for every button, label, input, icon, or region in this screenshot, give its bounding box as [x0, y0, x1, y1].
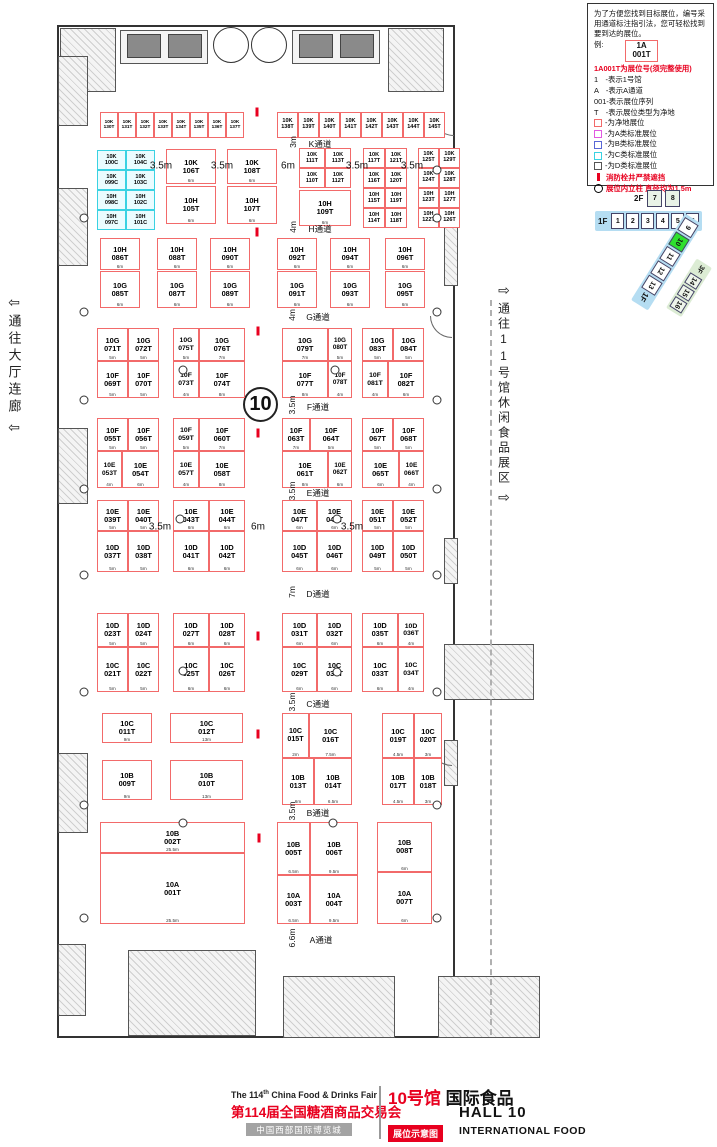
booth-10E-039T: 10E039T5m — [97, 500, 128, 531]
gap-width-label: 3.5m — [211, 161, 233, 172]
booth-10K-137T: 10K137T — [226, 112, 244, 138]
pillar-mark — [80, 214, 89, 223]
booth-10K-099C: 10K099C — [97, 170, 126, 190]
fire-hydrant-mark — [257, 429, 260, 438]
booth-10D-024T: 10D024T5m — [128, 613, 159, 647]
booth-10H-126T: 10H126T — [439, 208, 460, 228]
minimap-arm-label: 1F — [638, 291, 651, 304]
booth-10D-049T: 10D049T5m — [362, 531, 393, 572]
booth-10H-115T: 10H115T — [363, 188, 385, 208]
pillar-mark — [433, 485, 442, 494]
booth-10K-136T: 10K136T — [208, 112, 226, 138]
minimap-hall-4: 4 — [656, 213, 669, 229]
revolving-door — [251, 27, 287, 63]
aisle-name-C通道: C通道 — [306, 698, 329, 710]
arrow-right-icon: ⇨ — [491, 490, 517, 505]
top-slab — [168, 34, 202, 58]
legend-example-label: 例: — [594, 40, 603, 50]
aisle-width-label: 6.6m — [287, 929, 297, 948]
booth-10G-093T: 10G093T6m — [330, 271, 370, 308]
pillar-mark — [179, 366, 188, 375]
booth-10E-053T: 10E053T4m — [97, 451, 122, 488]
booth-10B-005T: 10B005T6.5m — [277, 822, 310, 875]
booth-10B-008T: 10B008T6m — [377, 822, 432, 872]
bottom-facility-center — [283, 976, 395, 1038]
legend-hydrant-note: 消防栓井严禁遮挡 — [594, 172, 708, 183]
booth-10K-135T: 10K135T — [190, 112, 208, 138]
aisle-width-label: 3.5m — [287, 396, 297, 415]
booth-10G-087T: 10G087T6m — [157, 271, 197, 308]
pillar-mark — [80, 688, 89, 697]
title-block: The 114th China Food & Drinks Fair 第114届… — [0, 1082, 717, 1147]
class-label: -为B类标准展位 — [605, 139, 657, 150]
legend-booth-classes: -为净地展位-为A类标准展位-为B类标准展位-为C类标准展位-为D类标准展位 — [594, 118, 708, 172]
gap-width-label: 3.5m — [341, 522, 363, 533]
fire-hydrant-mark — [257, 632, 260, 641]
arrow-left-icon: ⇦ — [1, 420, 27, 435]
legend-box: 为了方便您找到目标展位，编号采用通道标注指引法，您可轻松找到要到达的展位。 例:… — [587, 3, 714, 186]
hall-number-circle: 10 — [243, 387, 278, 422]
aisle-width-label: 4m — [287, 309, 297, 321]
booth-10D-028T: 10D028T6m — [209, 613, 245, 647]
left-wall-facility — [58, 944, 86, 1016]
pillar-mark — [80, 396, 89, 405]
gap-width-label: 3.5m — [346, 161, 368, 172]
booth-10H-102C: 10H102C — [126, 190, 155, 210]
booth-10H-105T: 10H105T6m — [166, 186, 216, 224]
booth-10A-004T: 10A004T9.5m — [310, 875, 358, 924]
minimap-hall-7: 7 — [647, 190, 662, 207]
aisle-width-label: 4m — [288, 221, 298, 233]
booth-10D-041T: 10D041T6m — [173, 531, 209, 572]
booth-10C-011T: 10C011T9m — [102, 713, 152, 743]
class-swatch — [594, 130, 602, 138]
booth-10G-083T: 10G083T5m — [362, 328, 393, 361]
booth-10H-119T: 10H119T — [385, 188, 407, 208]
booth-10E-057T: 10E057T4m — [173, 451, 199, 488]
booth-10H-101C: 10H101C — [126, 210, 155, 230]
booth-10K-132T: 10K132T — [136, 112, 154, 138]
booth-10K-108T: 10K108T6m — [227, 149, 277, 184]
booth-10C-033T: 10C033T6m — [362, 647, 398, 692]
legend-item: T -表示展位类型为净地 — [594, 107, 708, 118]
booth-10D-050T: 10D050T5m — [393, 531, 424, 572]
booth-10F-069T: 10F069T5m — [97, 361, 128, 398]
hall-number-cn: 10号馆 — [388, 1089, 441, 1108]
booth-10K-138T: 10K138T — [277, 112, 298, 138]
booth-10F-068T: 10F068T5m — [393, 418, 424, 451]
aisle-width-label: 3m — [288, 136, 298, 148]
legend-class-row: -为B类标准展位 — [594, 139, 708, 150]
booth-10G-095T: 10G095T6m — [385, 271, 425, 308]
booth-10F-074T: 10F074T8m — [199, 361, 245, 398]
pillar-mark — [331, 366, 340, 375]
legend-class-row: -为净地展位 — [594, 118, 708, 129]
booth-10H-109T: 10H109T6m — [299, 190, 351, 226]
pillar-mark — [433, 214, 442, 223]
booth-10F-067T: 10F067T5m — [362, 418, 393, 451]
hall-title-en: HALL 10 — [459, 1104, 527, 1121]
booth-10B-013T: 10B013T6m — [282, 758, 314, 805]
pillar-mark — [433, 308, 442, 317]
booth-10D-042T: 10D042T6m — [209, 531, 245, 572]
booth-10K-142T: 10K142T — [361, 112, 382, 138]
fire-hydrant-mark — [257, 327, 260, 336]
booth-10B-014T: 10B014T6.5m — [314, 758, 352, 805]
booth-10F-060T: 10F060T7m — [199, 418, 245, 451]
booth-10C-019T: 10C019T4.5m — [382, 713, 414, 758]
fair-title-cn: 第114届全国糖酒商品交易会 — [231, 1101, 401, 1121]
aisle-width-label: 3.5m — [287, 802, 297, 821]
legend-intro: 为了方便您找到目标展位，编号采用通道标注指引法，您可轻松找到要到达的展位。 — [594, 9, 708, 39]
booth-10E-052T: 10E052T5m — [393, 500, 424, 531]
booth-10G-089T: 10G089T6m — [210, 271, 250, 308]
aisle-name-K通道: K通道 — [309, 138, 332, 150]
booth-10H-123T: 10H123T — [418, 188, 439, 208]
aisle-name-A通道: A通道 — [310, 934, 333, 946]
booth-10E-054T: 10E054T6m — [122, 451, 159, 488]
right-side-stair-block — [444, 644, 534, 700]
booth-10K-128T: 10K128T — [439, 168, 460, 188]
pillar-mark — [433, 166, 442, 175]
arrow-right-icon: ⇨ — [491, 283, 517, 298]
legend-example-number: 001T — [632, 50, 650, 59]
booth-10H-107T: 10H107T6m — [227, 186, 277, 224]
booth-10B-006T: 10B006T9.5m — [310, 822, 358, 875]
booth-10K-100C: 10K100C — [97, 150, 126, 170]
pillar-mark — [433, 396, 442, 405]
booth-10K-106T: 10K106T6m — [166, 149, 216, 184]
class-label: -为A类标准展位 — [605, 129, 657, 140]
booth-10G-079T: 10G079T7m — [282, 328, 328, 361]
legend-example-booth: 1A 001T — [625, 40, 657, 62]
booth-10A-001T: 10A001T25.5m — [100, 853, 245, 924]
booth-10H-086T: 10H086T6m — [100, 238, 140, 270]
booth-10K-129T: 10K129T — [439, 148, 460, 168]
pillar-mark — [329, 819, 338, 828]
bottom-facility-left — [128, 950, 256, 1036]
booth-10K-145T: 10K145T — [424, 112, 445, 138]
aisle-name-E通道: E通道 — [307, 487, 330, 499]
class-swatch — [594, 162, 602, 170]
booth-10G-091T: 10G091T6m — [277, 271, 317, 308]
fire-hydrant-mark — [257, 730, 260, 739]
fire-hydrant-icon — [597, 173, 600, 181]
booth-10C-029T: 10C029T6m — [282, 647, 317, 692]
corridor-right-text: 通往11号馆休闲食品展区 — [496, 302, 513, 486]
booth-10H-118T: 10H118T — [385, 208, 407, 228]
booth-10K-130T: 10K130T — [100, 112, 118, 138]
aisle-name-B通道: B通道 — [307, 807, 330, 819]
legend-class-row: -为D类标准展位 — [594, 161, 708, 172]
hydrant-note-text: 消防栓井严禁遮挡 — [606, 172, 665, 183]
booth-10E-066T: 10E066T4m — [399, 451, 424, 488]
fire-hydrant-mark — [256, 108, 259, 117]
booth-10B-009T: 10B009T9m — [102, 760, 152, 800]
booth-10K-131T: 10K131T — [118, 112, 136, 138]
booth-10E-044T: 10E044T6m — [209, 500, 245, 531]
left-wall-facility — [58, 56, 88, 126]
booth-10D-027T: 10D027T6m — [173, 613, 209, 647]
booth-10G-075T: 10G075T5m — [173, 328, 199, 361]
booth-10H-092T: 10H092T6m — [277, 238, 317, 270]
booth-10H-096T: 10H096T6m — [385, 238, 425, 270]
booth-10F-059T: 10F059T5m — [173, 418, 199, 451]
pillar-mark — [333, 515, 342, 524]
booth-10E-058T: 10E058T8m — [199, 451, 245, 488]
booth-10K-143T: 10K143T — [382, 112, 403, 138]
gap-width-label: 6m — [251, 522, 265, 533]
aisle-name-H通道: H通道 — [308, 223, 331, 235]
booth-10D-045T: 10D045T6m — [282, 531, 317, 572]
pillar-mark — [433, 801, 442, 810]
arrow-left-icon: ⇦ — [1, 295, 27, 310]
booth-10F-082T: 10F082T6m — [388, 361, 424, 398]
aisle-width-label: 3.5m — [287, 693, 297, 712]
booth-10H-088T: 10H088T6m — [157, 238, 197, 270]
corridor-left-text: 通往大厅连廊 — [5, 314, 24, 416]
booth-10F-063T: 10F063T7m — [282, 418, 310, 451]
booth-10C-034T: 10C034T4m — [398, 647, 424, 692]
class-label: -为C类标准展位 — [605, 150, 657, 161]
pillar-mark — [80, 308, 89, 317]
venue-name-bar: 中国西部国际博览城 — [246, 1123, 352, 1136]
pillar-mark — [433, 571, 442, 580]
booth-10F-081T: 10F081T4m — [362, 361, 388, 398]
booth-10C-022T: 10C022T5m — [128, 647, 159, 692]
stair-block-top-right — [388, 28, 444, 92]
venue-minimap: 2F 78 1F 123456 910111213 1F 3F 141516 — [586, 186, 717, 346]
booth-10K-140T: 10K140T — [319, 112, 340, 138]
pillar-mark — [80, 571, 89, 580]
minimap-hall-1: 1 — [611, 213, 624, 229]
booth-10G-080T: 10G080T5m — [328, 328, 352, 361]
pillar-mark — [433, 688, 442, 697]
fire-hydrant-mark — [258, 834, 261, 843]
bottom-facility-right — [438, 976, 540, 1038]
booth-10G-084T: 10G084T5m — [393, 328, 424, 361]
booth-10F-070T: 10F070T5m — [128, 361, 159, 398]
booth-10H-097C: 10H097C — [97, 210, 126, 230]
pillar-mark — [433, 914, 442, 923]
legend-item: 001-表示展位序列 — [594, 96, 708, 107]
aisle-width-label: 3.5m — [287, 482, 297, 501]
aisle-name-D通道: D通道 — [306, 588, 329, 600]
booth-10C-026T: 10C026T6m — [209, 647, 245, 692]
booth-10D-037T: 10D037T5m — [97, 531, 128, 572]
booth-10A-003T: 10A003T6.5m — [277, 875, 310, 924]
plan-badge: 展位示意图 — [388, 1125, 443, 1142]
gap-width-label: 3.5m — [401, 161, 423, 172]
booth-10G-085T: 10G085T6m — [100, 271, 140, 308]
booth-10K-139T: 10K139T — [298, 112, 319, 138]
booth-10D-032T: 10D032T6m — [317, 613, 352, 647]
top-slab — [127, 34, 161, 58]
booth-10D-046T: 10D046T6m — [317, 531, 352, 572]
booth-10K-141T: 10K141T — [340, 112, 361, 138]
booth-10H-098C: 10H098C — [97, 190, 126, 210]
booth-10D-031T: 10D031T6m — [282, 613, 317, 647]
aisle-width-label: 7m — [287, 586, 297, 598]
class-label: -为D类标准展位 — [605, 161, 657, 172]
pillar-mark — [179, 667, 188, 676]
legend-example-hall: 1A — [636, 41, 646, 50]
top-slab — [299, 34, 333, 58]
booth-10B-010T: 10B010T13m — [170, 760, 243, 800]
minimap-2f-row: 2F 78 — [634, 190, 680, 207]
booth-10A-007T: 10A007T6m — [377, 872, 432, 924]
booth-10C-012T: 10C012T13m — [170, 713, 243, 743]
top-slab — [340, 34, 374, 58]
booth-10F-055T: 10F055T5m — [97, 418, 128, 451]
booth-10B-017T: 10B017T4.5m — [382, 758, 414, 805]
legend-class-row: -为C类标准展位 — [594, 150, 708, 161]
legend-item: A -表示A通道 — [594, 85, 708, 96]
booth-10K-144T: 10K144T — [403, 112, 424, 138]
booth-10K-103C: 10K103C — [126, 170, 155, 190]
booth-10D-038T: 10D038T5m — [128, 531, 159, 572]
fire-hydrant-mark — [256, 228, 259, 237]
gap-width-label: 3.5m — [150, 161, 172, 172]
booth-10D-035T: 10D035T6m — [362, 613, 398, 647]
booth-10E-065T: 10E065T6m — [362, 451, 399, 488]
legend-item: 1 -表示1号馆 — [594, 74, 708, 85]
minimap-1f-label: 1F — [598, 217, 607, 226]
booth-10F-064T: 10F064T5m — [310, 418, 352, 451]
booth-10K-133T: 10K133T — [154, 112, 172, 138]
booth-10C-021T: 10C021T5m — [97, 647, 128, 692]
corridor-label-right: ⇨ 通往11号馆休闲食品展区 ⇨ — [491, 283, 517, 506]
aisle-name-F通道: F通道 — [307, 401, 329, 413]
class-label: -为净地展位 — [605, 118, 644, 129]
minimap-hall-2: 2 — [626, 213, 639, 229]
pillar-mark — [179, 819, 188, 828]
pillar-mark — [80, 485, 89, 494]
booth-10H-094T: 10H094T6m — [330, 238, 370, 270]
booth-10F-077T: 10F077T8m — [282, 361, 328, 398]
booth-10D-036T: 10D036T4m — [398, 613, 424, 647]
pillar-mark — [80, 914, 89, 923]
booth-10G-076T: 10G076T7m — [199, 328, 245, 361]
booth-10C-016T: 10C016T7.5m — [309, 713, 352, 758]
legend-items: 1 -表示1号馆A -表示A通道001-表示展位序列T -表示展位类型为净地 — [594, 74, 708, 118]
aisle-name-G通道: G通道 — [306, 311, 330, 323]
class-swatch — [594, 141, 602, 149]
booth-10G-072T: 10G072T5m — [128, 328, 159, 361]
booth-10K-111T: 10K111T — [299, 148, 325, 168]
gap-width-label: 6m — [281, 161, 295, 172]
hall-type-en: INTERNATIONAL FOOD — [459, 1125, 586, 1137]
booth-10B-002T: 10B002T25.5m — [100, 822, 245, 853]
booth-10K-110T: 10K110T — [299, 168, 325, 188]
booth-10H-127T: 10H127T — [439, 188, 460, 208]
booth-10C-020T: 10C020T3m — [414, 713, 442, 758]
revolving-door — [213, 27, 249, 63]
gap-width-label: 3.5m — [149, 522, 171, 533]
booth-10H-114T: 10H114T — [363, 208, 385, 228]
legend-headline: 1A001T为展位号(须完整使用) — [594, 64, 708, 74]
right-wall-facility — [444, 538, 458, 584]
booth-10H-090T: 10H090T6m — [210, 238, 250, 270]
booth-10D-023T: 10D023T5m — [97, 613, 128, 647]
booth-10F-056T: 10F056T5m — [128, 418, 159, 451]
booth-10C-015T: 10C015T2m — [282, 713, 309, 758]
corridor-label-left: ⇦ 通往大厅连廊 ⇦ — [1, 295, 27, 436]
minimap-annex-label: 3F — [695, 264, 705, 275]
booth-10K-134T: 10K134T — [172, 112, 190, 138]
booth-10E-047T: 10E047T6m — [282, 500, 317, 531]
class-swatch — [594, 119, 602, 127]
class-swatch — [594, 152, 602, 160]
minimap-hall-8: 8 — [665, 190, 680, 207]
booth-10E-051T: 10E051T5m — [362, 500, 393, 531]
pillar-mark — [333, 668, 342, 677]
title-divider — [379, 1086, 381, 1139]
booth-10B-018T: 10B018T3m — [414, 758, 442, 805]
minimap-2f-label: 2F — [634, 194, 643, 203]
left-wall-facility — [58, 753, 88, 833]
pillar-mark — [176, 515, 185, 524]
minimap-hall-3: 3 — [641, 213, 654, 229]
booth-10G-071T: 10G071T5m — [97, 328, 128, 361]
fair-title-en: The 114th China Food & Drinks Fair — [231, 1090, 377, 1100]
pillar-mark — [80, 801, 89, 810]
booth-10E-062T: 10E062T6m — [328, 451, 352, 488]
left-wall-facility — [58, 188, 88, 266]
legend-class-row: -为A类标准展位 — [594, 129, 708, 140]
